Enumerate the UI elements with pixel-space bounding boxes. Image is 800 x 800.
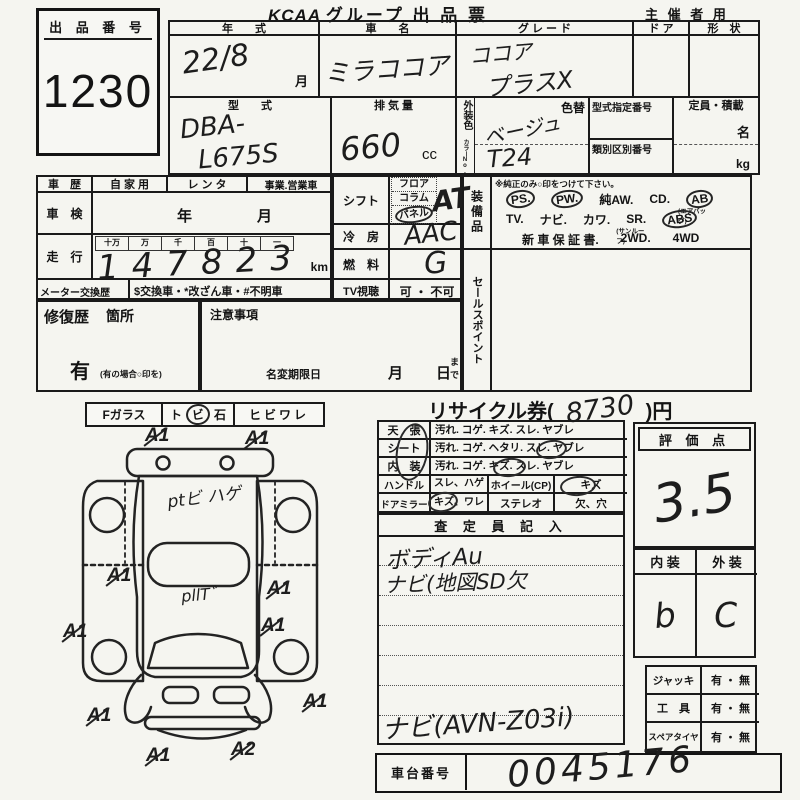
lot-number-label: 出 品 番 号 xyxy=(44,14,152,40)
jack-label: ジャッキ xyxy=(647,667,702,695)
shift-options: フロア コラム パネル xyxy=(391,177,437,224)
model-header: 型 式 xyxy=(170,98,330,111)
front-bumper-lip xyxy=(158,730,246,739)
glass-legend: Fガラス ト ビ 石 ヒビワレ xyxy=(85,402,325,427)
capacity-header: 定員・積載 xyxy=(674,98,758,111)
car-outline-svg xyxy=(45,425,375,787)
chassis-label: 車台番号 xyxy=(377,755,467,790)
equipment-box: ※純正のみ○印をつけて下さい。 PS. PW. 純AW. CD. AB(エアバッ… xyxy=(490,175,752,250)
equipment-2wd: 2WD. xyxy=(621,231,651,248)
equipment-ps: PS. xyxy=(505,188,536,209)
inspector-note-2: ナビ(地図SD欠 xyxy=(384,565,528,600)
mirror-label: ドアミラー xyxy=(379,494,431,513)
note-line xyxy=(379,625,623,626)
displacement-cell: 排 気 量 660 cc xyxy=(332,98,457,177)
shaken-cell: 年 月 xyxy=(93,193,334,235)
damage-mark: A1 xyxy=(267,578,291,600)
shift-label: シフト xyxy=(334,177,390,225)
displacement-header: 排 気 量 xyxy=(332,98,455,111)
rear-hinge-right xyxy=(221,457,234,470)
glass-label: Fガラス xyxy=(85,402,163,427)
lot-number-box: 出 品 番 号 1230 xyxy=(36,8,160,156)
repair-sub-label: 箇所 xyxy=(106,306,134,326)
rear-bumper xyxy=(127,449,273,476)
year-unit: 月 xyxy=(295,71,308,90)
caution-label: 注意事項 xyxy=(210,306,258,323)
history-label: 車 歴 xyxy=(38,177,93,193)
car-name-header: 車 名 xyxy=(320,22,457,36)
shaken-year-unit: 年 xyxy=(177,205,192,226)
ac-label: 冷 房 xyxy=(334,225,390,250)
shape-cell xyxy=(690,36,758,98)
grade-box: 内 装 外 装 b C xyxy=(633,548,756,658)
shaken-month-unit: 月 xyxy=(257,205,272,226)
tool-value: 有 ・ 無 xyxy=(702,695,759,723)
repair-label: 修復歴 xyxy=(44,306,89,327)
damage-mark: A1 xyxy=(145,425,169,447)
equipment-label-strip: 装備品 xyxy=(462,175,492,250)
note-line xyxy=(379,655,623,656)
score-box: 評 価 点 3.5 xyxy=(633,422,756,548)
year-value: 22/8 xyxy=(180,37,252,81)
door-cell xyxy=(634,36,690,98)
history-rental: レ ン タ xyxy=(168,177,248,193)
spare-tire-value: 有 ・ 無 xyxy=(702,723,759,751)
repair-yes: 有 xyxy=(70,355,90,384)
rename-day: 日 xyxy=(436,362,451,383)
equipment-4wd: 4WD xyxy=(673,231,700,248)
fuel-label: 燃 料 xyxy=(334,250,390,280)
spec-number-label: 型式指定番号 xyxy=(590,98,672,115)
history-business: 事業.営業車 xyxy=(248,177,334,193)
damage-mark: A1 xyxy=(303,691,327,713)
equipment-row2: TV. ナビ. カワ. SR.(サンルーフ) ABS xyxy=(506,210,698,228)
caution-box: 注意事項 名変期限日 月 日 まで xyxy=(200,300,462,392)
interior-grade-label: 内 装 xyxy=(635,550,695,575)
model-line1: DBA- xyxy=(179,109,247,146)
sales-point-box xyxy=(490,248,752,392)
equipment-label: 装備品 xyxy=(469,190,486,235)
damage-mark: A2 xyxy=(231,739,255,761)
shift-option-column: コラム xyxy=(392,191,436,205)
capacity-weight-unit: kg xyxy=(736,157,750,171)
year-header: 年 式 xyxy=(170,22,320,36)
capacity-persons-unit: 名 xyxy=(737,122,750,141)
equipment-note: ※純正のみ○印をつけて下さい。 xyxy=(495,178,619,190)
wheel-front-left xyxy=(92,640,126,674)
note-line xyxy=(379,685,623,686)
damage-mark: A1 xyxy=(87,705,111,727)
equipment-warranty: 新 車 保 証 書. xyxy=(522,231,599,248)
wheel-label: ホイール(CP) xyxy=(489,476,555,494)
shape-header: 形 状 xyxy=(690,22,758,36)
grade-cell: ココア プラスX xyxy=(457,36,634,98)
rear-hinge-left xyxy=(157,457,170,470)
fuel-cell: G xyxy=(390,250,464,280)
repair-note: (有の場合○印を) xyxy=(100,368,162,380)
wheel-rear-right xyxy=(276,498,310,532)
grade-header: グ レ ー ド xyxy=(457,22,634,36)
mileage-cell: 十万 万 千 百 十 一 147823 km xyxy=(93,235,334,280)
fuel-value: G xyxy=(423,245,449,282)
door-header: ド ア xyxy=(634,22,690,36)
glass-chip-circled: ビ xyxy=(185,403,211,427)
mileage-label: 走 行 xyxy=(38,235,93,280)
meter-label: メーター交換歴 xyxy=(38,280,130,302)
equipment-leather: カワ. xyxy=(583,211,610,228)
exterior-grade-label: 外 装 xyxy=(697,550,757,575)
equipment-abs: ABS xyxy=(661,208,698,230)
equipment-tv: TV. xyxy=(506,212,524,226)
color-change-label: 色替 xyxy=(561,99,585,116)
equipment-cd: CD. xyxy=(649,192,670,206)
sales-point-label: セールスポイント xyxy=(469,276,485,364)
color-label: 外装色 xyxy=(459,100,474,130)
seat-items: 汚れ. コゲ. ヘタリ. スレ. ヤブレ xyxy=(431,440,627,458)
rename-deadline-label: 名変期限日 xyxy=(266,366,321,382)
diagram-note-2: pllT゛ xyxy=(180,579,227,607)
score-value: 3.5 xyxy=(628,444,761,553)
damage-mark: A1 xyxy=(261,615,285,637)
capacity-divider xyxy=(674,144,758,145)
headlight-right xyxy=(214,687,249,703)
equipment-sr: SR.(サンルーフ) xyxy=(626,212,646,226)
inspector-header: 査 定 員 記 入 xyxy=(379,515,623,537)
rename-month: 月 xyxy=(388,362,403,383)
model-line2: L675S xyxy=(197,139,280,176)
capacity-cell: 定員・積載 名 kg xyxy=(674,98,758,177)
wheel-rear-left xyxy=(90,498,124,532)
tv-value: 可 ・ 不可 xyxy=(390,280,464,302)
color-label-col: 外装色 カラーNo. xyxy=(457,98,475,177)
damage-mark: A1 xyxy=(146,745,170,767)
inspector-box: 査 定 員 記 入 ボディAu ナビ(地図SD欠 ナビ(AVN-Z03i) xyxy=(377,513,625,745)
stereo-items: 欠、穴 xyxy=(555,494,627,513)
sales-point-strip: セールスポイント xyxy=(462,248,492,392)
shaken-label: 車 検 xyxy=(38,193,93,235)
interior-items: 汚れ. コゲ. キズ. スレ. ヤブレ xyxy=(431,458,627,476)
color-no-label: カラーNo. xyxy=(461,139,470,175)
tv-label: TV視聴 xyxy=(334,280,390,302)
meter-text: $交換車・*改ざん車・#不明車 xyxy=(130,280,334,302)
tool-label: 工 具 xyxy=(647,695,702,723)
color-code-value: T24 xyxy=(486,142,533,173)
damage-mark: A1 xyxy=(245,428,269,450)
type-numbers-cell: 型式指定番号 類別区別番号 xyxy=(590,98,674,177)
windshield xyxy=(148,634,248,668)
history-table: 車 歴 自 家 用 レ ン タ 事業.営業車 車 検 年 月 走 行 十万 万 … xyxy=(36,175,332,300)
wheel-front-right xyxy=(274,640,308,674)
history-private: 自 家 用 xyxy=(93,177,168,193)
repair-box: 修復歴 箇所 有 (有の場合○印を) xyxy=(36,300,200,392)
equipment-navi: ナビ. xyxy=(540,211,567,228)
chassis-value: 0045176 xyxy=(506,739,697,796)
equipment-row3: 新 車 保 証 書. 2WD. 4WD xyxy=(522,231,699,248)
car-name-cell: ミラココア xyxy=(320,36,457,98)
auction-sheet: KCAA グループ 出 品 票 主 催 者 用 出 品 番 号 1230 年 式… xyxy=(0,0,800,800)
jack-value: 有 ・ 無 xyxy=(702,667,759,695)
exterior-color-cell: 外装色 カラーNo. 色替 ベージュ T24 xyxy=(457,98,590,177)
car-name-value: ミラココア xyxy=(323,46,450,91)
exterior-grade-value: C xyxy=(695,578,758,654)
damage-mark: A1 xyxy=(63,621,87,643)
model-cell: 型 式 DBA- L675S xyxy=(170,98,332,177)
headlight-left xyxy=(163,687,198,703)
accessories-box: ジャッキ 有 ・ 無 工 具 有 ・ 無 スペアタイヤ 有 ・ 無 xyxy=(645,665,757,753)
equipment-row1: PS. PW. 純AW. CD. AB(エアバッグ) xyxy=(506,190,713,208)
interior-grade-value: b xyxy=(631,577,698,655)
equipment-aw: 純AW. xyxy=(599,191,633,208)
inspector-note-3: ナビ(AVN-Z03i) xyxy=(380,696,576,746)
damage-mark: A1 xyxy=(107,565,131,587)
rename-until: まで xyxy=(450,355,460,381)
roof-panel xyxy=(148,543,249,586)
front-bumper xyxy=(145,717,260,729)
year-cell: 22/8 月 xyxy=(170,36,320,98)
displacement-unit: cc xyxy=(422,146,437,163)
glass-stone-chip: ト ビ 石 xyxy=(163,402,235,427)
controls-table: シフト フロア コラム パネル AT 冷 房 AAC 燃 料 G TV視聴 可 … xyxy=(332,175,462,300)
displacement-value: 660 xyxy=(338,125,402,168)
stereo-label: ステレオ xyxy=(489,494,555,513)
recycle-suffix: )円 xyxy=(646,395,673,424)
chassis-box: 車台番号 0045176 xyxy=(375,753,782,793)
class-number-label: 類別区別番号 xyxy=(590,140,654,157)
lot-number-value: 1230 xyxy=(39,51,157,131)
equipment-pw: PW. xyxy=(550,188,584,210)
ceiling-items: 汚れ. コゲ. キズ. スレ. ヤブレ xyxy=(431,422,627,440)
mileage-unit: km xyxy=(311,260,328,274)
glass-crack: ヒビワレ xyxy=(235,402,325,427)
vehicle-table: 年 式 車 名 グ レ ー ド ド ア 形 状 22/8 月 ミラココア ココア… xyxy=(168,20,760,175)
car-diagram: A1 A1 A1 A1 A1 A1 A1 A1 A1 A2 ptビ ハゲ pll… xyxy=(45,425,375,787)
